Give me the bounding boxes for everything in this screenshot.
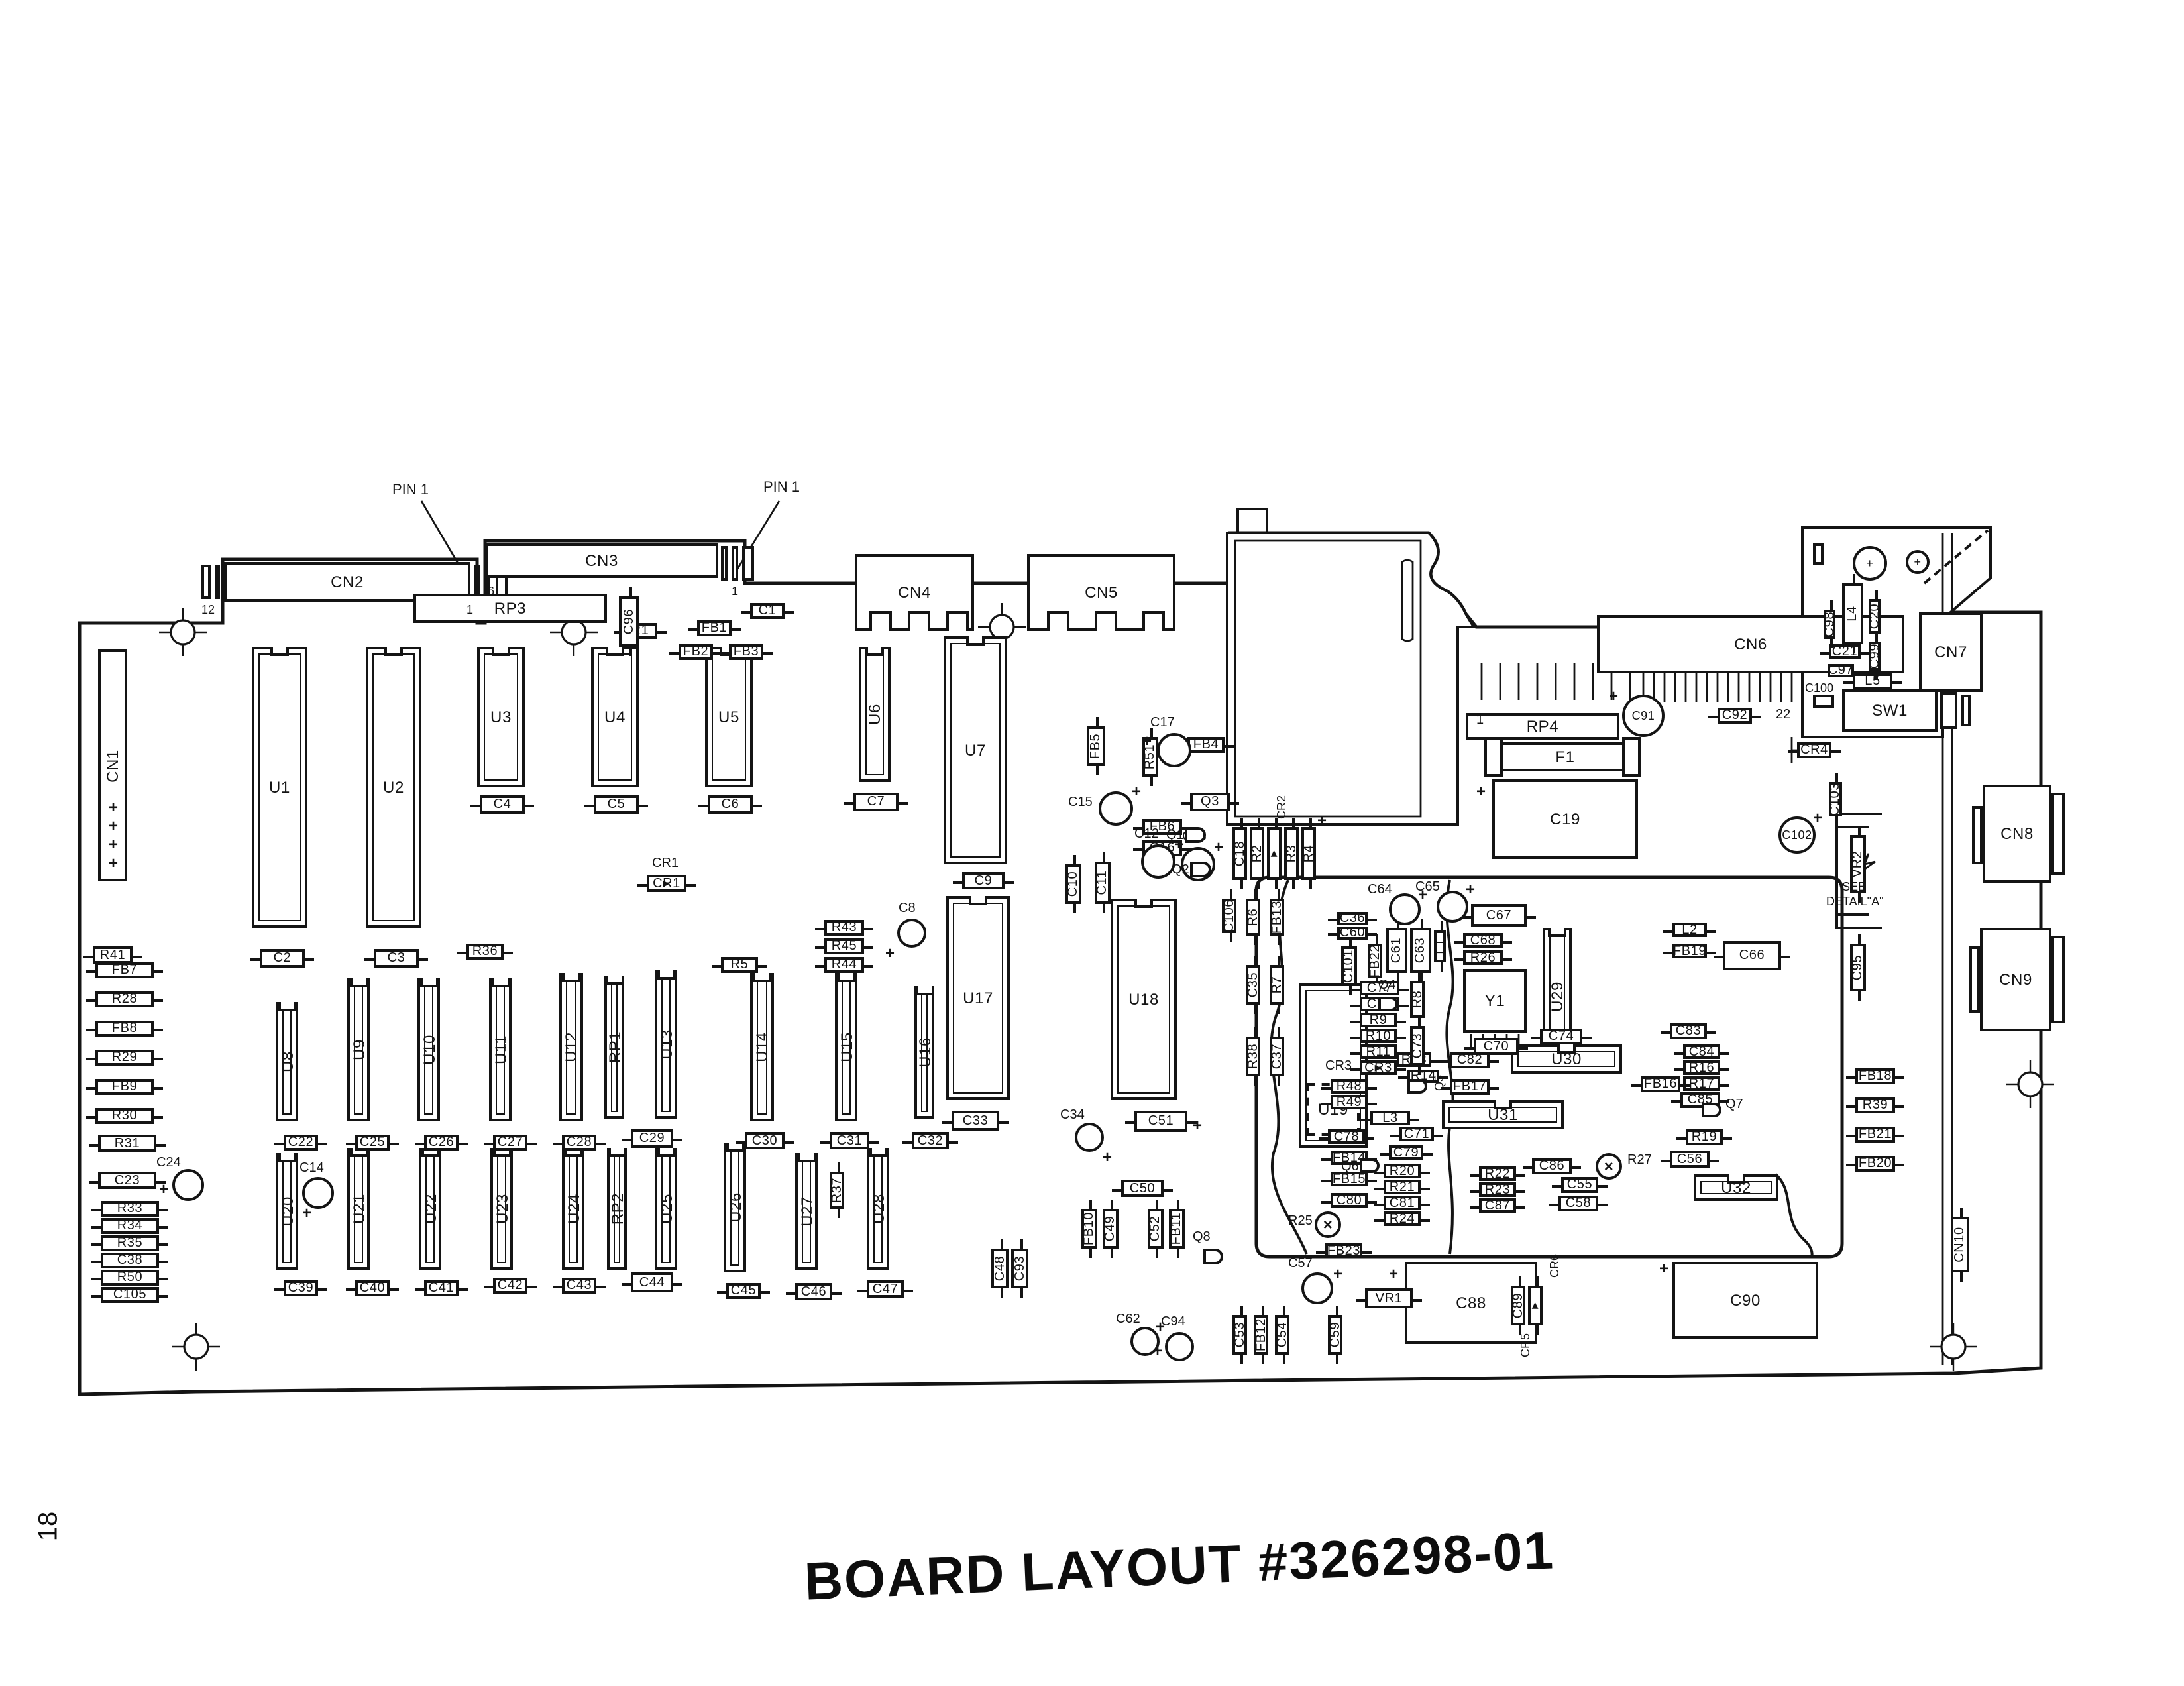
- part-C68: C68: [1463, 933, 1503, 948]
- part-R3: R3: [1284, 827, 1299, 880]
- part-C43: C43: [562, 1278, 596, 1294]
- part-label-FB18: FB18: [1859, 1069, 1892, 1084]
- part-label-U17: U17: [963, 989, 993, 1007]
- part-C52: C52: [1148, 1209, 1164, 1249]
- part-c51-plus: +: [1193, 1116, 1202, 1135]
- part-label-U11: U11: [491, 1035, 510, 1064]
- part-C100: C100: [1805, 681, 1833, 695]
- part-label-C78: C78: [1334, 1129, 1360, 1144]
- part-label-U8: U8: [278, 1051, 296, 1072]
- part-label-C7: C7: [867, 795, 885, 809]
- part-label-R28: R28: [112, 992, 138, 1007]
- part-FB1: FB1: [697, 620, 732, 636]
- part-C90: C90: [1672, 1262, 1818, 1339]
- part-label-CN1: CN1: [103, 749, 122, 782]
- part-U24: U24: [562, 1148, 584, 1270]
- part-label-R9: R9: [1370, 1013, 1388, 1027]
- part-label-RP1: RP1: [605, 1031, 624, 1064]
- diode-icon: ▸: [663, 876, 671, 891]
- dip-notch: [384, 647, 403, 656]
- part-label-U15: U15: [837, 1032, 855, 1062]
- part-label-C1: C1: [759, 604, 777, 618]
- part-label-C40: C40: [360, 1281, 386, 1296]
- callout-see-detail-2: DETAIL"A": [1826, 895, 1883, 908]
- part-label-R44: R44: [832, 958, 857, 972]
- part-Q7-body: [1702, 1103, 1721, 1117]
- connector-notch: [1095, 611, 1117, 631]
- part-CR5: CR5: [1519, 1333, 1532, 1357]
- part-FB19: FB19: [1672, 944, 1707, 958]
- part-cn2-pin-l1: [201, 565, 211, 599]
- part-label-FB3: FB3: [734, 645, 759, 659]
- part-label-CN3: CN3: [585, 551, 618, 570]
- part-C25: C25: [355, 1135, 390, 1151]
- part-label-C81: C81: [1390, 1196, 1415, 1210]
- part-label-C53: C53: [1232, 1322, 1247, 1348]
- part-label-U13: U13: [657, 1029, 675, 1060]
- part-label-C10: C10: [1066, 871, 1081, 897]
- part-C5: C5: [594, 795, 639, 814]
- part-label-F1: F1: [1555, 748, 1574, 766]
- part-FB2: FB2: [679, 644, 713, 660]
- part-label-RP3: RP3: [494, 599, 527, 618]
- part-label-C20: C20: [1867, 604, 1882, 630]
- part-Q5-body: [1407, 1079, 1427, 1094]
- part-C102: C102: [1778, 816, 1816, 854]
- part-label-C26: C26: [429, 1135, 455, 1150]
- part-label-U26: U26: [726, 1192, 744, 1223]
- part-label-C28: C28: [567, 1135, 592, 1150]
- part-label-FB16: FB16: [1644, 1077, 1677, 1092]
- part-C38: C38: [101, 1253, 159, 1268]
- part-c57-plus: +: [1333, 1264, 1342, 1283]
- part-label-U4: U4: [604, 708, 626, 726]
- part-cn1-plus4: +: [109, 854, 118, 872]
- connector-notch: [946, 611, 969, 631]
- part-c62-plus: +: [1156, 1318, 1165, 1336]
- part-label-R23: R23: [1485, 1182, 1511, 1197]
- part-U21: U21: [347, 1148, 370, 1270]
- part-label-C5: C5: [608, 797, 626, 812]
- part-label-FB7: FB7: [112, 963, 138, 978]
- part-FB18: FB18: [1855, 1068, 1895, 1084]
- part-label-R19: R19: [1692, 1130, 1718, 1145]
- part-label-U10: U10: [419, 1035, 438, 1065]
- dip-notch: [1548, 928, 1566, 937]
- part-label-FB8: FB8: [112, 1021, 138, 1036]
- part-C64-body: [1389, 893, 1421, 925]
- part-label-C47: C47: [873, 1282, 899, 1296]
- part-FB21: FB21: [1855, 1127, 1895, 1143]
- part-label-R6: R6: [1246, 909, 1260, 927]
- part-C82: C82: [1450, 1052, 1490, 1068]
- part-R17: R17: [1683, 1076, 1720, 1091]
- part-U4: U4: [591, 647, 639, 787]
- part-label-C2: C2: [274, 951, 292, 966]
- part-C37: C37: [1270, 1037, 1284, 1076]
- part-U23: U23: [490, 1148, 513, 1270]
- part-Q2-body: [1190, 862, 1211, 877]
- part-CR3: CR3: [1325, 1059, 1352, 1074]
- part-R34: R34: [101, 1218, 159, 1234]
- part-f1-clip-l: [1484, 737, 1503, 777]
- callout-cn6-pin1: 1: [1476, 713, 1484, 728]
- part-label-C87: C87: [1485, 1198, 1511, 1213]
- part-U9: U9: [347, 978, 370, 1121]
- part-label-C3: C3: [388, 951, 406, 966]
- part-Q4: Q4: [1378, 978, 1396, 993]
- part-label-R22: R22: [1485, 1166, 1511, 1181]
- part-label-C83: C83: [1676, 1024, 1702, 1039]
- part-C45: C45: [726, 1283, 761, 1299]
- part-U7: U7: [944, 636, 1007, 864]
- part-C12: C12: [1134, 827, 1159, 842]
- part-C99: C99: [1869, 642, 1881, 671]
- part-Q4-body: [1378, 997, 1398, 1011]
- part-label-U12: U12: [562, 1032, 580, 1062]
- part-C54: C54: [1275, 1315, 1289, 1355]
- part-C62: C62: [1116, 1312, 1140, 1327]
- part-R35: R35: [101, 1235, 159, 1251]
- part-label-FB20: FB20: [1859, 1156, 1892, 1171]
- part-U20: U20: [276, 1153, 298, 1270]
- part-label-U3: U3: [490, 708, 512, 726]
- part-label-FB22: FB22: [1368, 944, 1382, 978]
- part-L2: L2: [1672, 923, 1707, 937]
- part-C44: C44: [631, 1272, 673, 1292]
- part-label-C74: C74: [1549, 1029, 1574, 1044]
- part-label-C91: C91: [1632, 709, 1655, 722]
- part-L4: L4: [1842, 583, 1863, 644]
- part-RP2: RP2: [607, 1148, 627, 1270]
- part-label-R39: R39: [1863, 1098, 1888, 1113]
- part-label-R10: R10: [1366, 1029, 1392, 1043]
- part-label-CN2: CN2: [331, 573, 364, 591]
- part-C106: C106: [1222, 899, 1236, 933]
- part-R2: R2: [1250, 827, 1264, 880]
- part-label-C43: C43: [567, 1278, 592, 1293]
- part-C96: C96: [619, 596, 639, 647]
- part-C29: C29: [631, 1129, 673, 1148]
- part-CN3: CN3: [485, 543, 718, 578]
- part-C12-body: [1141, 844, 1175, 879]
- part-C42: C42: [493, 1278, 527, 1294]
- dip-notch: [657, 1148, 675, 1157]
- part-label-C51: C51: [1148, 1114, 1174, 1129]
- part-label-FB21: FB21: [1859, 1127, 1892, 1142]
- part-R29: R29: [95, 1050, 154, 1066]
- part-U12: U12: [559, 973, 583, 1121]
- part-label-U6: U6: [865, 704, 884, 725]
- part-R25: R25: [1288, 1214, 1313, 1229]
- part-label-C90: C90: [1730, 1291, 1761, 1310]
- screw-x-icon: ×: [1604, 1157, 1614, 1176]
- part-label-C52: C52: [1148, 1216, 1163, 1242]
- part-C71: C71: [1399, 1127, 1434, 1141]
- part-U1: U1: [252, 647, 307, 928]
- part-cr2-diode: ▴: [1267, 827, 1282, 880]
- part-C20: C20: [1869, 599, 1881, 634]
- part-C41: C41: [424, 1280, 459, 1296]
- part-C46: C46: [795, 1283, 832, 1300]
- part-C35: C35: [1246, 965, 1260, 1005]
- part-Q5: Q5: [1433, 1075, 1446, 1091]
- part-c65-plus: +: [1466, 880, 1475, 899]
- dip-notch: [915, 986, 934, 995]
- part-FB17: FB17: [1450, 1079, 1490, 1095]
- part-label-C68: C68: [1470, 933, 1496, 948]
- part-label-C79: C79: [1393, 1145, 1419, 1160]
- part-label-C67: C67: [1486, 908, 1512, 923]
- part-R39: R39: [1855, 1097, 1895, 1113]
- part-C105: C105: [101, 1287, 159, 1303]
- part-R49: R49: [1331, 1095, 1368, 1109]
- connector-notch: [869, 611, 892, 631]
- part-R28: R28: [95, 991, 154, 1007]
- part-FB5: FB5: [1087, 726, 1105, 766]
- part-label-C60: C60: [1340, 926, 1366, 940]
- part-R24: R24: [1384, 1211, 1421, 1226]
- part-CR4: CR4: [1797, 742, 1831, 758]
- part-label-R37: R37: [830, 1178, 844, 1204]
- part-C56: C56: [1670, 1151, 1710, 1168]
- dip-notch: [491, 978, 510, 987]
- board-layout-diagram: CN2CN3CN4CN5CN6CN7CN8CN9CN1SW1Y1C19C88C9…: [0, 0, 2184, 1686]
- part-C40: C40: [355, 1280, 390, 1296]
- part-label-C48: C48: [993, 1256, 1007, 1282]
- part-c15-plus: +: [1132, 782, 1141, 801]
- part-U5: U5: [705, 647, 753, 787]
- part-c19-plus: +: [1476, 782, 1486, 801]
- part-label-L4: L4: [1845, 606, 1860, 621]
- part-label-C95: C95: [1851, 955, 1865, 981]
- part-FB16: FB16: [1641, 1076, 1680, 1092]
- part-C31: C31: [830, 1132, 869, 1149]
- part-cn3-pin-r1: [721, 546, 728, 581]
- part-c91-plus: +: [1609, 687, 1618, 705]
- part-label-R7: R7: [1270, 976, 1284, 994]
- part-C8-body: [897, 919, 926, 948]
- part-label-U7: U7: [965, 741, 986, 759]
- part-R44: R44: [824, 957, 864, 973]
- part-label-U20: U20: [278, 1196, 296, 1227]
- part-RP4: RP4: [1466, 713, 1619, 740]
- part-label-C50: C50: [1130, 1181, 1156, 1196]
- part-label-R17: R17: [1689, 1076, 1715, 1091]
- part-U11: U11: [489, 978, 512, 1121]
- part-C50: C50: [1121, 1180, 1164, 1197]
- part-label-R38: R38: [1246, 1044, 1260, 1070]
- part-label-R26: R26: [1470, 950, 1496, 965]
- part-C79: C79: [1389, 1145, 1423, 1160]
- part-FB7: FB7: [95, 962, 154, 978]
- part-C84: C84: [1683, 1044, 1720, 1059]
- part-C17-body: [1157, 733, 1191, 767]
- part-label-U16: U16: [915, 1037, 934, 1068]
- part-cn9-stub: [1969, 946, 1980, 1013]
- part-L3: L3: [1370, 1111, 1410, 1125]
- part-C65-body: [1437, 891, 1468, 923]
- part-f1-clip-r: [1622, 737, 1641, 777]
- part-C74: C74: [1540, 1029, 1582, 1044]
- part-U26: U26: [724, 1143, 746, 1272]
- part-label-CN10: CN10: [1953, 1227, 1967, 1263]
- dip-notch: [606, 647, 624, 656]
- part-C15: C15: [1068, 795, 1093, 810]
- part-Y1: Y1: [1463, 969, 1527, 1033]
- part-L1: L1: [1434, 930, 1446, 962]
- part-cn3-pin-r3: [742, 546, 754, 581]
- part-Q2: Q2: [1172, 863, 1189, 877]
- part-C15-body: [1099, 791, 1133, 826]
- part-C51: C51: [1134, 1111, 1187, 1132]
- part-FB4: FB4: [1187, 737, 1225, 753]
- part-C36: C36: [1337, 912, 1368, 925]
- part-R45: R45: [824, 938, 864, 954]
- part-C9: C9: [962, 872, 1005, 889]
- part-F1: F1: [1492, 742, 1638, 771]
- callout-pin1-left: PIN 1: [392, 482, 429, 498]
- part-C92: C92: [1718, 708, 1752, 724]
- dip-notch: [492, 647, 510, 656]
- callout-cn3-pin6: 6: [488, 585, 494, 598]
- part-label-C27: C27: [498, 1135, 523, 1150]
- part-CR1: CR1▸: [647, 875, 686, 892]
- part-VR1: VR1: [1365, 1288, 1413, 1308]
- part-c94-plus: +: [1153, 1341, 1162, 1360]
- part-C78: C78: [1328, 1129, 1365, 1144]
- part-FB3: FB3: [729, 644, 763, 660]
- part-label-C58: C58: [1566, 1196, 1592, 1211]
- part-C24-body: [172, 1169, 204, 1201]
- part-label-CR4: CR4: [1800, 743, 1828, 758]
- part-C32: C32: [912, 1132, 949, 1149]
- part-label-R29: R29: [112, 1050, 138, 1065]
- part-label-U1: U1: [269, 778, 290, 797]
- part-c102-plus: +: [1813, 809, 1822, 827]
- part-C59: C59: [1328, 1315, 1342, 1355]
- part-c90-plus: +: [1659, 1259, 1668, 1278]
- part-label-C61: C61: [1390, 938, 1404, 964]
- dip-notch: [562, 973, 580, 982]
- part-sw1-tab2: [1961, 695, 1971, 726]
- part-U18: U18: [1111, 899, 1177, 1100]
- part-Q3: Q3: [1190, 793, 1230, 811]
- part-C19: C19: [1492, 779, 1638, 859]
- part-R6: R6: [1246, 899, 1260, 936]
- part-label-C31: C31: [837, 1133, 863, 1148]
- part-label-L5: L5: [1865, 674, 1880, 689]
- part-C95: C95: [1850, 944, 1866, 991]
- part-C49: C49: [1103, 1209, 1119, 1249]
- part-label-R11: R11: [1366, 1044, 1390, 1059]
- part-label-CN6: CN6: [1734, 635, 1767, 653]
- part-U3: U3: [477, 647, 525, 787]
- part-U17: U17: [946, 896, 1010, 1100]
- part-label-C39: C39: [288, 1281, 314, 1296]
- part-C97: C97: [1828, 664, 1854, 677]
- part-cn1-plus2: +: [109, 816, 118, 835]
- part-cn9-shroud: [2051, 936, 2065, 1023]
- part-FB10: FB10: [1081, 1209, 1097, 1249]
- callout-cn2-pin12: 12: [201, 603, 215, 616]
- part-R38: R38: [1246, 1037, 1260, 1076]
- part-label-C37: C37: [1270, 1044, 1284, 1070]
- part-R16: R16: [1683, 1060, 1720, 1075]
- part-U32: U32: [1694, 1174, 1778, 1201]
- part-label-C84: C84: [1689, 1044, 1715, 1059]
- part-label-R34: R34: [117, 1219, 143, 1233]
- part-R8: R8: [1410, 981, 1425, 1018]
- part-cn2-pin-l2: [215, 565, 220, 599]
- screw-cross-icon: +: [1866, 557, 1873, 570]
- part-Q6: Q6: [1341, 1160, 1359, 1174]
- part-label-R43: R43: [832, 921, 857, 935]
- part-label-C6: C6: [722, 797, 739, 812]
- part-C83: C83: [1670, 1023, 1707, 1039]
- part-label-FB5: FB5: [1089, 734, 1103, 759]
- part-label-FB10: FB10: [1082, 1212, 1097, 1245]
- part-label-C105: C105: [113, 1288, 146, 1302]
- part-label-C93: C93: [1012, 1256, 1027, 1282]
- part-label-C88: C88: [1456, 1294, 1486, 1312]
- dip-notch: [349, 978, 368, 987]
- dip-notch: [605, 976, 624, 985]
- part-FB11: FB11: [1169, 1209, 1185, 1249]
- dip-notch: [278, 1153, 296, 1162]
- part-label-C92: C92: [1722, 708, 1748, 723]
- part-label-C36: C36: [1340, 911, 1366, 926]
- part-label-U24: U24: [564, 1194, 582, 1224]
- part-U14: U14: [750, 973, 774, 1121]
- part-label-C25: C25: [360, 1135, 386, 1150]
- part-label-R49: R49: [1337, 1095, 1362, 1109]
- part-label-SW1: SW1: [1872, 701, 1908, 720]
- part-C4: C4: [480, 795, 525, 814]
- part-R22: R22: [1479, 1166, 1516, 1181]
- part-label-C11: C11: [1095, 870, 1110, 895]
- part-label-C66: C66: [1739, 948, 1765, 963]
- part-label-C18: C18: [1232, 841, 1247, 867]
- part-C7: C7: [853, 793, 899, 811]
- part-label-FB4: FB4: [1193, 738, 1219, 752]
- page-number: 18: [34, 1512, 64, 1542]
- part-CR2: CR2: [1275, 795, 1288, 819]
- part-label-FB17: FB17: [1453, 1080, 1486, 1094]
- part-label-CN7: CN7: [1934, 643, 1967, 661]
- part-C101: C101: [1341, 946, 1357, 986]
- part-C26: C26: [424, 1135, 459, 1151]
- part-C67: C67: [1471, 904, 1527, 927]
- part-Q6-body: [1360, 1158, 1380, 1173]
- scanned-page: CN2CN3CN4CN5CN6CN7CN8CN9CN1SW1Y1C19C88C9…: [0, 0, 2184, 1686]
- part-label-R24: R24: [1390, 1211, 1415, 1226]
- part-label-Y1: Y1: [1485, 991, 1505, 1010]
- part-label-U9: U9: [349, 1039, 368, 1060]
- part-cn1-plus3: +: [109, 835, 118, 854]
- part-c64-plus: +: [1418, 885, 1427, 904]
- diode-icon: ▴: [1271, 846, 1278, 861]
- part-R31: R31: [98, 1135, 156, 1152]
- dip-notch: [837, 973, 855, 982]
- part-label-U18: U18: [1128, 990, 1159, 1009]
- part-SW1: SW1: [1842, 689, 1938, 732]
- part-plate-slot: [1813, 543, 1824, 565]
- part-label-CN5: CN5: [1085, 583, 1118, 602]
- part-label-C86: C86: [1539, 1159, 1565, 1174]
- part-C91: C91: [1622, 695, 1665, 737]
- part-label-R16: R16: [1689, 1060, 1715, 1075]
